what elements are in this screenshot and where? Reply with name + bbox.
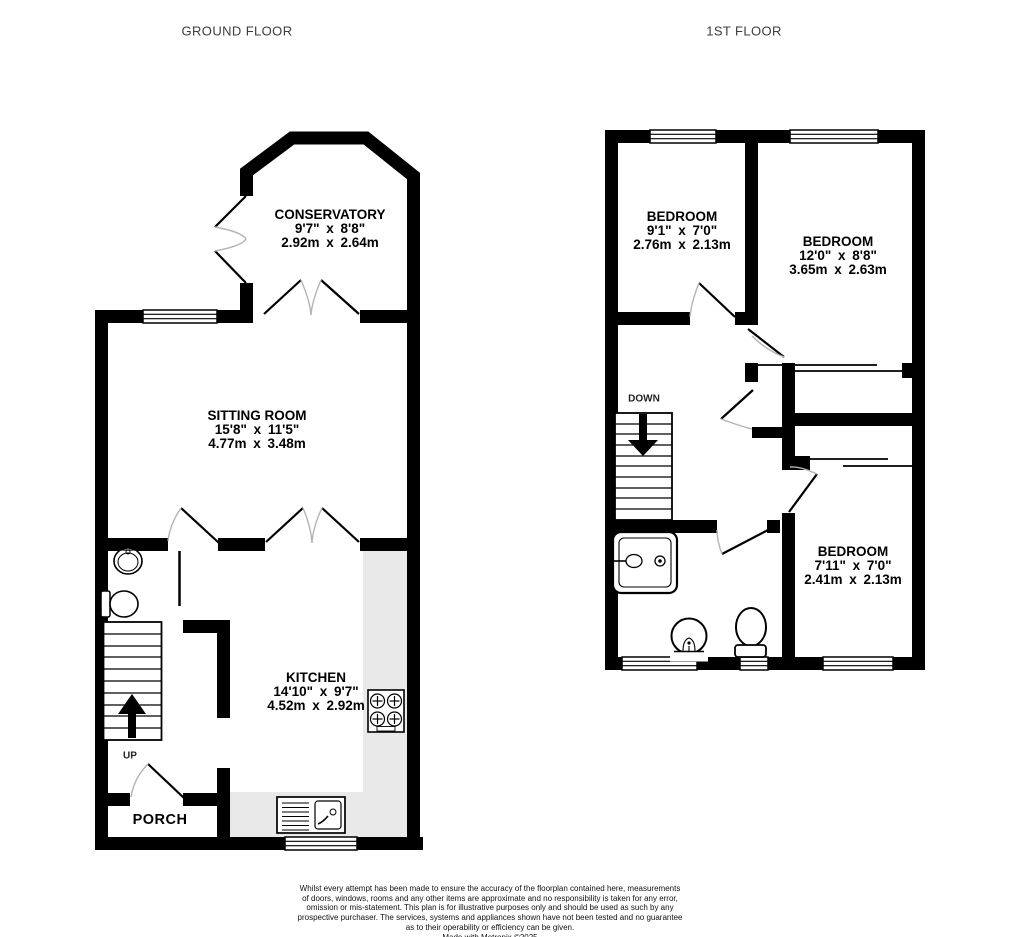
room-dims-imperial: 15'8" x 11'5" (208, 423, 307, 437)
room-name: BEDROOM (804, 545, 902, 559)
room-dims-imperial: 7'11" x 7'0" (804, 559, 902, 573)
bedroom3-window (823, 657, 893, 670)
kitchen-window (285, 837, 357, 850)
cupboard-door (721, 390, 753, 429)
stairs-up-label: UP (123, 751, 137, 762)
room-dims-metric: 4.77m x 3.48m (208, 437, 307, 451)
staircase-down (615, 413, 672, 520)
shower-icon (613, 532, 677, 593)
bedroom1-window (650, 130, 716, 143)
floorplan-page: GROUND FLOOR 1ST FLOOR CONSERVATORY 9'7"… (0, 0, 1024, 937)
landing-small-window (740, 657, 768, 670)
ground-floor-windows (143, 310, 357, 850)
room-name: BEDROOM (789, 235, 887, 249)
room-name: SITTING ROOM (208, 409, 307, 423)
toilet-icon (735, 608, 766, 657)
toilet-icon (101, 591, 138, 617)
first-floor-title: 1ST FLOOR (706, 24, 782, 39)
porch-door (131, 764, 184, 798)
room-dims-metric: 2.76m x 2.13m (633, 238, 731, 252)
room-name: CONSERVATORY (274, 208, 385, 222)
room-label-bedroom-1: BEDROOM 9'1" x 7'0" 2.76m x 2.13m (633, 210, 731, 252)
sitting-hall-door (168, 508, 219, 543)
disclaimer-line: omission or mis-statement. This plan is … (260, 903, 720, 913)
staircase-up (104, 622, 162, 740)
room-dims-metric: 2.92m x 2.64m (274, 236, 385, 250)
ground-floor-title: GROUND FLOOR (182, 24, 293, 39)
room-dims-imperial: 14'10" x 9'7" (267, 685, 365, 699)
stairs-down-label: DOWN (628, 394, 660, 405)
room-label-sitting-room: SITTING ROOM 15'8" x 11'5" 4.77m x 3.48m (208, 409, 307, 451)
room-label-bedroom-3: BEDROOM 7'11" x 7'0" 2.41m x 2.13m (804, 545, 902, 587)
room-dims-imperial: 9'1" x 7'0" (633, 224, 731, 238)
room-label-porch: PORCH (133, 812, 188, 828)
disclaimer: Whilst every attempt has been made to en… (260, 884, 720, 937)
room-dims-imperial: 9'7" x 8'8" (274, 222, 385, 236)
room-label-bedroom-2: BEDROOM 12'0" x 8'8" 3.65m x 2.63m (789, 235, 887, 277)
room-dims-metric: 3.65m x 2.63m (789, 263, 887, 277)
bathroom-fixtures (613, 532, 766, 662)
bedroom2-window (790, 130, 878, 143)
room-name: BEDROOM (633, 210, 731, 224)
floorplan-canvas (0, 0, 1024, 937)
bedroom2-door (748, 329, 784, 357)
room-dims-metric: 2.41m x 2.13m (804, 573, 902, 587)
disclaimer-line: prospective purchaser. The services, sys… (260, 913, 720, 923)
disclaimer-line: as to their operability or efficiency ca… (260, 923, 720, 933)
room-dims-metric: 4.52m x 2.92m (267, 699, 365, 713)
room-dims-imperial: 12'0" x 8'8" (789, 249, 887, 263)
sitting-room-window (143, 310, 217, 323)
room-label-kitchen: KITCHEN 14'10" x 9'7" 4.52m x 2.92m (267, 671, 365, 713)
conservatory-french-doors (215, 196, 246, 283)
basin-icon (114, 548, 142, 574)
room-label-conservatory: CONSERVATORY 9'7" x 8'8" 2.92m x 2.64m (274, 208, 385, 250)
sitting-kitchen-doors (266, 508, 359, 543)
credit-line: Made with Metropix ©2025 (260, 933, 720, 937)
bathroom-door (717, 530, 768, 554)
conservatory-sitting-doors (264, 280, 359, 315)
bedroom3-door (789, 467, 817, 512)
hob-icon (368, 690, 404, 732)
disclaimer-line: Whilst every attempt has been made to en… (260, 884, 720, 894)
pedestal-basin-icon (670, 619, 708, 662)
bedroom1-door (690, 283, 735, 317)
kitchen-sink-icon (277, 797, 345, 833)
disclaimer-line: of doors, windows, rooms and any other i… (260, 894, 720, 904)
room-name: KITCHEN (267, 671, 365, 685)
